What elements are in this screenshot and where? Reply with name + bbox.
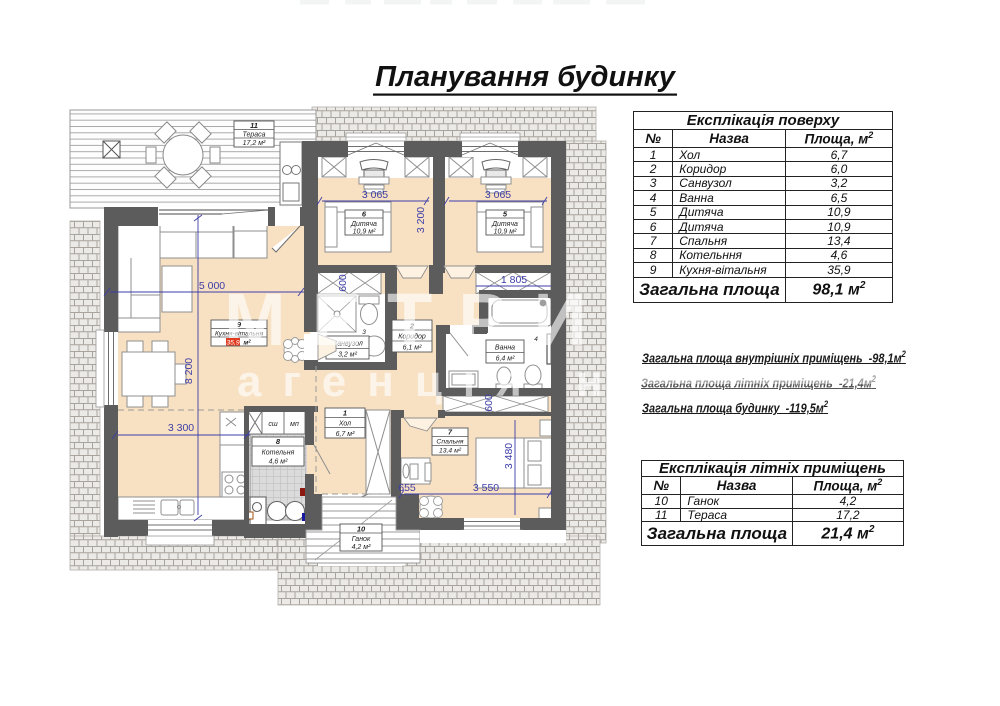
svg-text:655: 655 xyxy=(398,482,416,494)
svg-text:Тераса: Тераса xyxy=(242,132,265,139)
svg-text:13,4 м²: 13,4 м² xyxy=(439,448,462,455)
svg-text:м²: м² xyxy=(244,339,252,346)
svg-text:4,2 м²: 4,2 м² xyxy=(352,544,371,551)
svg-text:10,9 м²: 10,9 м² xyxy=(494,229,517,236)
svg-text:Котельня: Котельня xyxy=(262,450,295,457)
svg-text:Спальня: Спальня xyxy=(436,439,464,446)
svg-text:Дитяча: Дитяча xyxy=(350,221,377,228)
svg-text:Планування будинку: Планування будинку xyxy=(375,61,677,93)
svg-text:6,7 м²: 6,7 м² xyxy=(336,431,355,438)
svg-text:Ганок: Ганок xyxy=(352,536,371,543)
svg-text:3 550: 3 550 xyxy=(473,482,499,494)
svg-text:3 480: 3 480 xyxy=(503,443,515,469)
svg-text:сш: сш xyxy=(268,421,278,428)
svg-text:8 200: 8 200 xyxy=(183,358,195,384)
svg-text:5 000: 5 000 xyxy=(199,280,225,292)
svg-text:4,6 м²: 4,6 м² xyxy=(269,459,288,466)
svg-text:Хол: Хол xyxy=(338,421,351,428)
svg-text:мп: мп xyxy=(290,421,299,428)
svg-text:3 200: 3 200 xyxy=(415,207,427,233)
svg-text:3 300: 3 300 xyxy=(168,422,194,434)
svg-text:10,9 м²: 10,9 м² xyxy=(353,229,376,236)
svg-text:Дитяча: Дитяча xyxy=(491,221,518,228)
svg-text:3 065: 3 065 xyxy=(485,189,511,201)
svg-text:МЕТРИ: МЕТРИ xyxy=(224,278,613,361)
svg-text:3 065: 3 065 xyxy=(362,189,388,201)
svg-text:1: 1 xyxy=(343,409,347,418)
svg-text:10: 10 xyxy=(357,525,366,534)
svg-text:35,9: 35,9 xyxy=(226,339,239,346)
svg-text:11: 11 xyxy=(250,121,258,130)
svg-text:17,2 м²: 17,2 м² xyxy=(243,140,266,147)
